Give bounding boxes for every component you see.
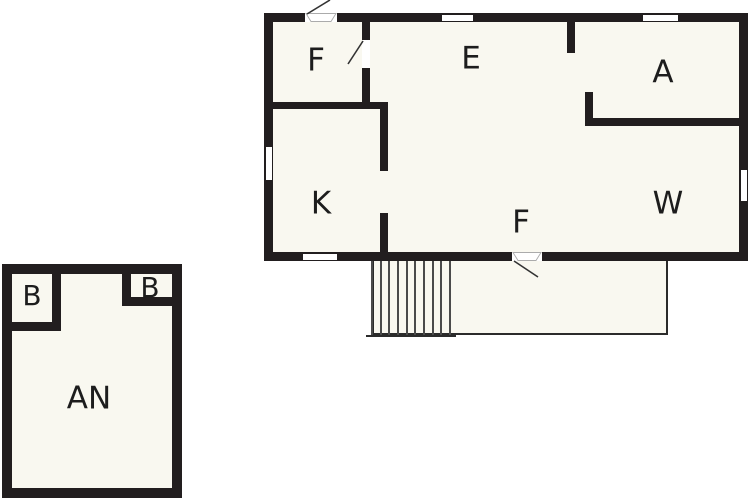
floor-plan-canvas: F E A K W F B B AN: [0, 0, 750, 500]
room-label-k: K: [311, 189, 331, 220]
door-swing-top: [307, 0, 330, 14]
wall-a-w-horizontal: [585, 118, 739, 126]
stair-tread-line: [440, 261, 442, 336]
annex-wall-right: [172, 264, 182, 498]
room-label-f-top: F: [307, 46, 325, 77]
stair-tread-line: [423, 261, 425, 336]
wall-f-e-upper: [362, 22, 370, 40]
wall-k-right-lower: [380, 213, 388, 252]
stair-tread-line: [406, 261, 408, 336]
stair-tread-line: [397, 261, 399, 336]
room-label-an: AN: [67, 384, 111, 415]
main-wall-right: [739, 13, 748, 261]
stairs-base-line: [366, 335, 456, 337]
stair-tread-line: [449, 261, 451, 336]
room-label-f-entrance: F: [512, 208, 530, 239]
stair-tread-line: [414, 261, 416, 336]
window-bottom-wall: [303, 254, 337, 260]
door-top-entrance: [305, 13, 337, 22]
stair-tread-line: [432, 261, 434, 336]
room-label-b-right: B: [140, 274, 159, 302]
door-bottom-entrance: [512, 252, 542, 261]
stair-tread-line: [388, 261, 390, 336]
window-top-right: [643, 15, 678, 21]
room-label-b-left: B: [22, 282, 41, 310]
stair-tread-line: [380, 261, 382, 336]
room-label-a: A: [652, 58, 673, 89]
window-top-left: [442, 15, 473, 21]
annex-wall-left: [2, 264, 12, 498]
main-wall-left: [264, 13, 273, 261]
annex-b-left-bottom-wall: [12, 322, 61, 331]
window-right-wall: [741, 170, 747, 201]
wall-e-a-stub: [567, 22, 575, 53]
window-left-wall: [266, 147, 272, 180]
room-label-w: W: [653, 189, 684, 220]
stairs: [372, 261, 450, 336]
wall-k-right-upper: [380, 109, 388, 171]
annex-wall-bottom: [2, 488, 182, 498]
wall-f-k-horizontal: [273, 102, 388, 109]
room-label-e: E: [461, 44, 481, 75]
stair-tread-line: [371, 261, 373, 336]
door-f-e-interior: [362, 40, 370, 68]
